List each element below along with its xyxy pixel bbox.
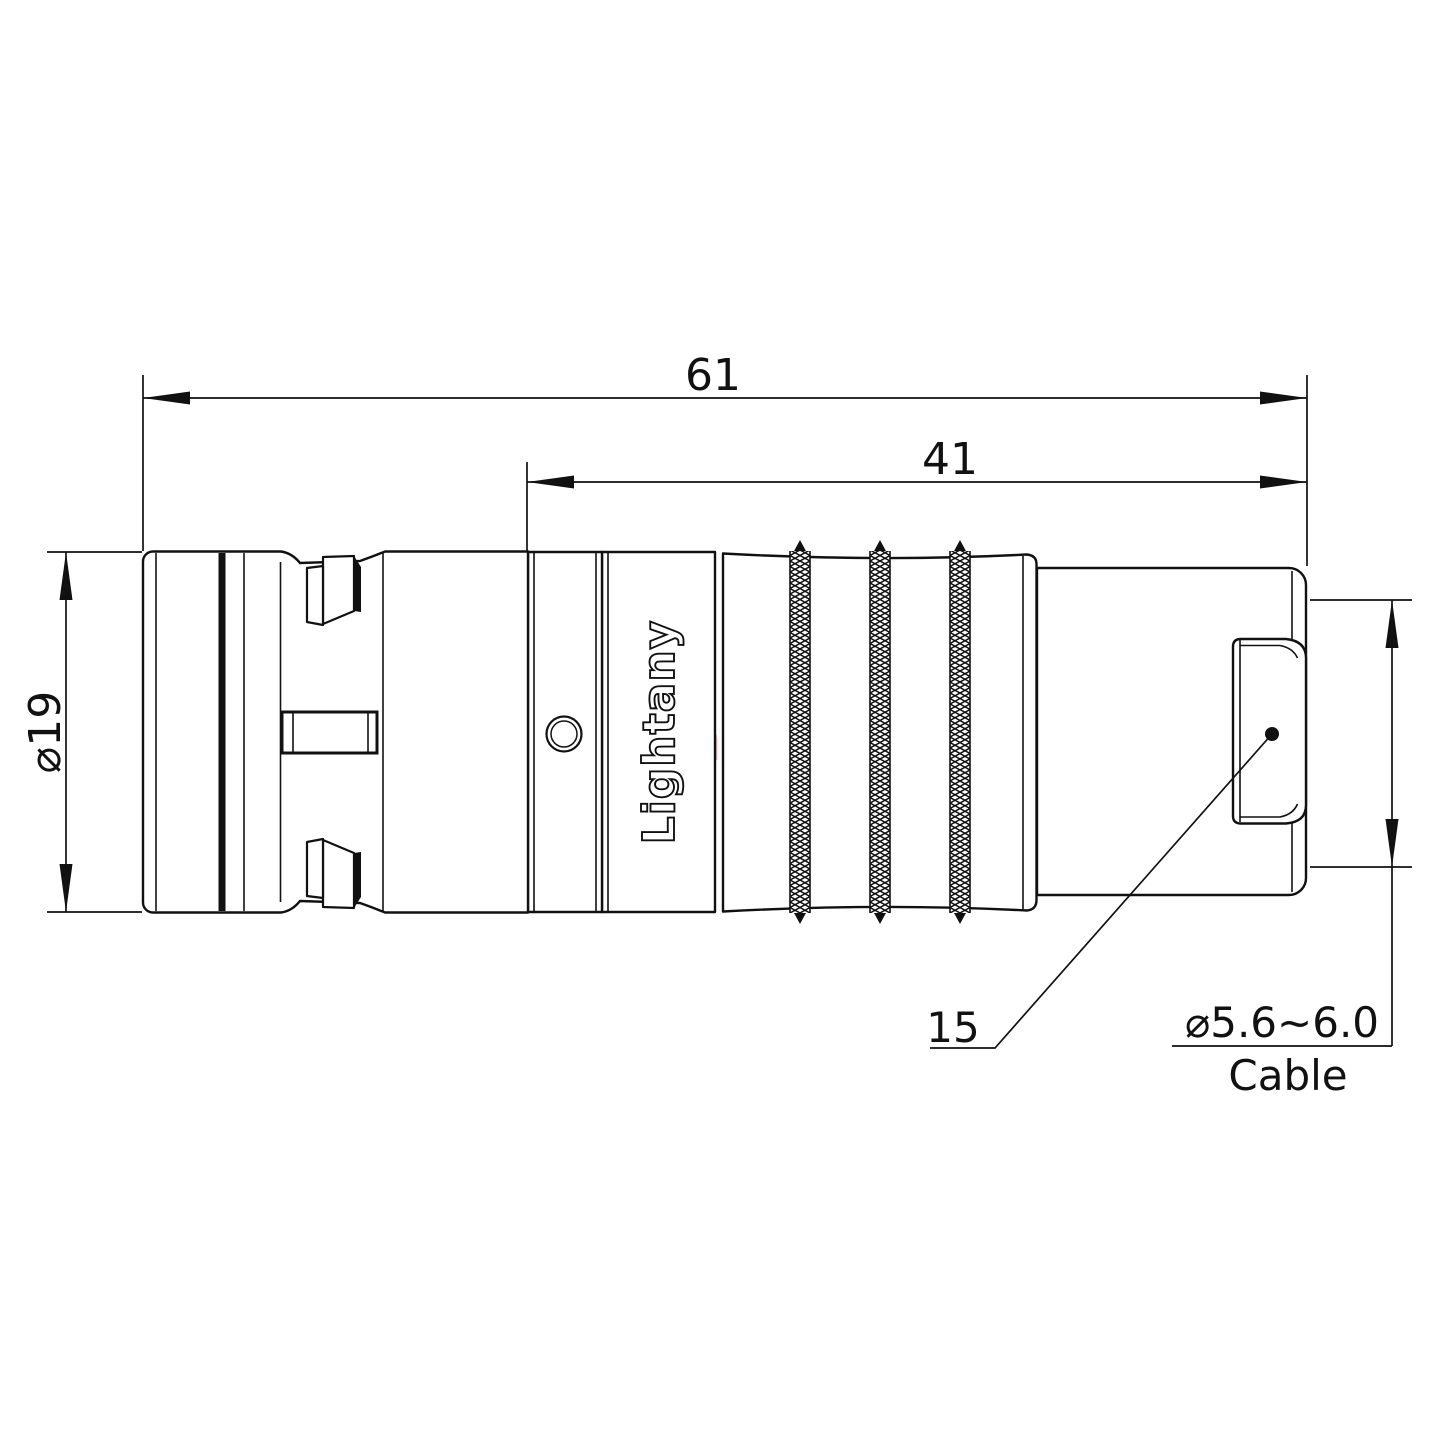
knurl-section xyxy=(723,540,1037,924)
connector-drawing: Lightany xyxy=(0,0,1440,1440)
brand-engraving-text: Lightany xyxy=(634,620,685,845)
cable-diameter-label: ⌀5.6~6.0 xyxy=(1185,998,1379,1047)
front-shell xyxy=(143,552,528,913)
engraved-section: Lightany xyxy=(602,552,715,912)
dim-41-label: 41 xyxy=(922,434,978,485)
cable-word-label: Cable xyxy=(1228,1051,1347,1100)
knurl-band xyxy=(870,540,890,924)
dimension-front-diameter: ⌀19 xyxy=(20,552,142,912)
dimension-rear-length: 41 xyxy=(527,434,1307,551)
callout-15-label: 15 xyxy=(926,1003,979,1052)
latch-slot xyxy=(282,712,377,753)
dim-diameter19-label: ⌀19 xyxy=(20,691,71,773)
dim-61-label: 61 xyxy=(685,350,741,401)
technical-drawing-page: Lightany xyxy=(0,0,1440,1440)
shell-ring-band xyxy=(219,553,226,911)
dimension-overall-length: 61 xyxy=(143,350,1307,566)
knurl-band xyxy=(950,540,970,924)
knurl-band xyxy=(790,540,810,924)
coupling-collar xyxy=(528,552,602,912)
